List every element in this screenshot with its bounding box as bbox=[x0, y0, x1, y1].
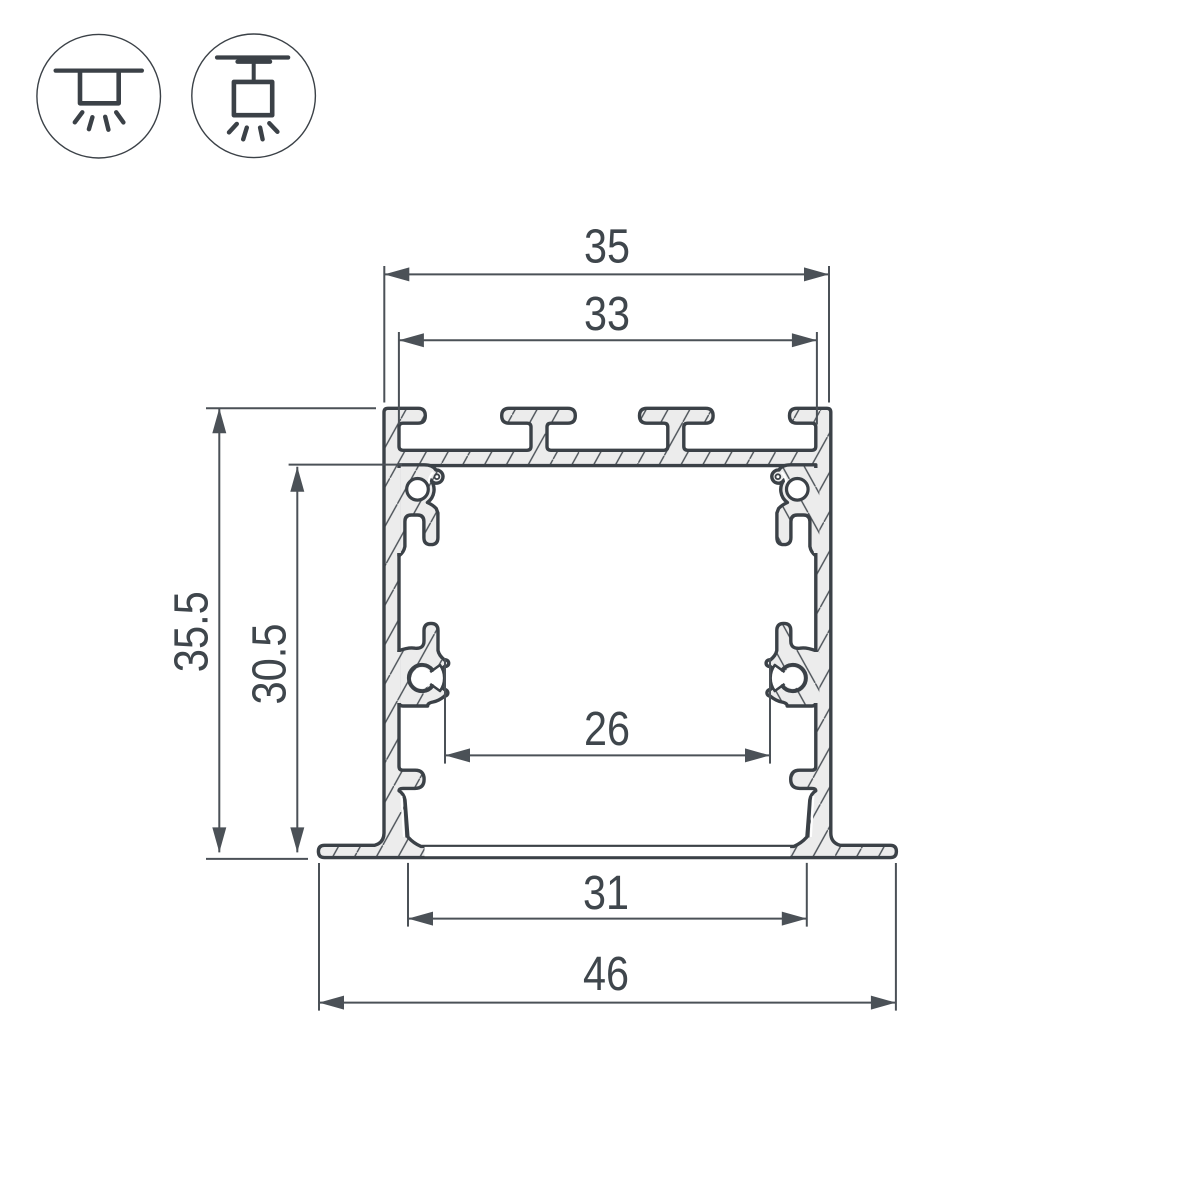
svg-text:26: 26 bbox=[584, 703, 630, 756]
svg-text:33: 33 bbox=[584, 288, 630, 341]
svg-text:35.5: 35.5 bbox=[166, 591, 219, 672]
svg-text:46: 46 bbox=[583, 948, 629, 1001]
svg-text:30.5: 30.5 bbox=[244, 624, 297, 705]
svg-text:31: 31 bbox=[583, 867, 629, 920]
svg-text:35: 35 bbox=[584, 221, 630, 274]
